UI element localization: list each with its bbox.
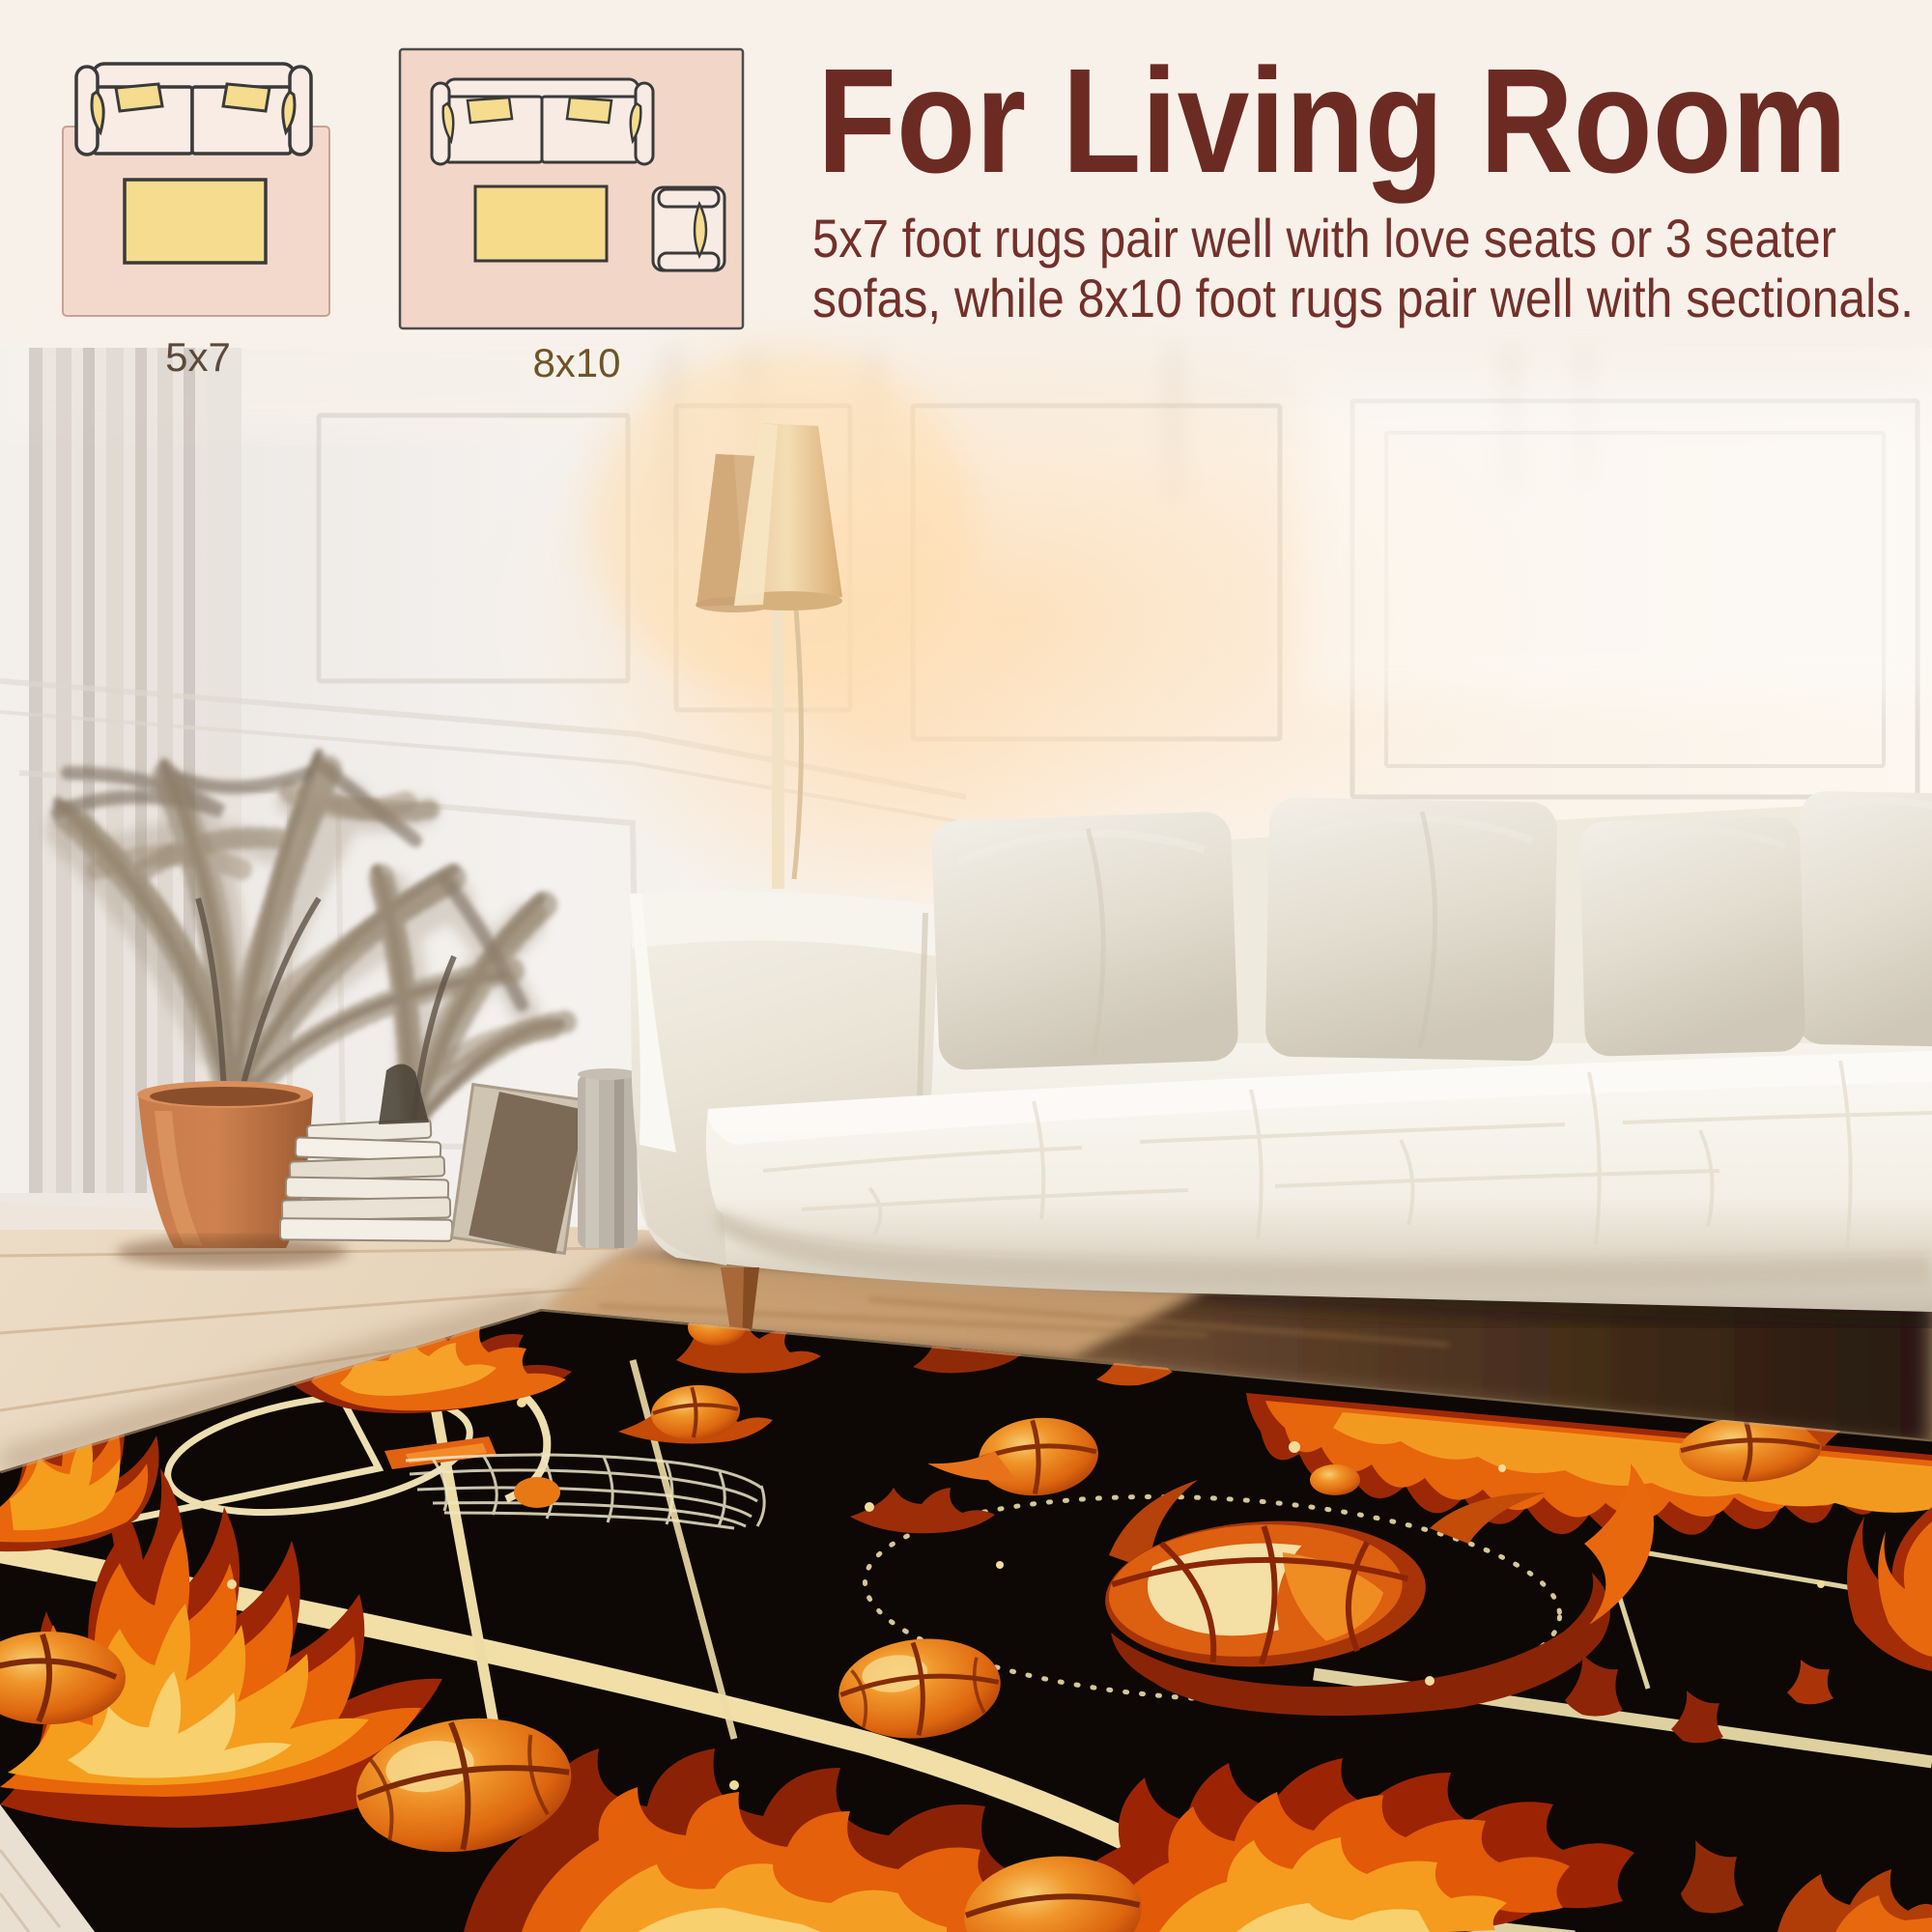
svg-text:5x7: 5x7 [165, 334, 231, 380]
svg-text:8x10: 8x10 [532, 340, 620, 385]
svg-text:sofas, while 8x10 foot rugs pa: sofas, while 8x10 foot rugs pair well wi… [812, 268, 1914, 328]
svg-text:For Living Room: For Living Room [817, 38, 1847, 204]
svg-text:5x7 foot rugs pair well with l: 5x7 foot rugs pair well with love seats … [812, 208, 1836, 269]
